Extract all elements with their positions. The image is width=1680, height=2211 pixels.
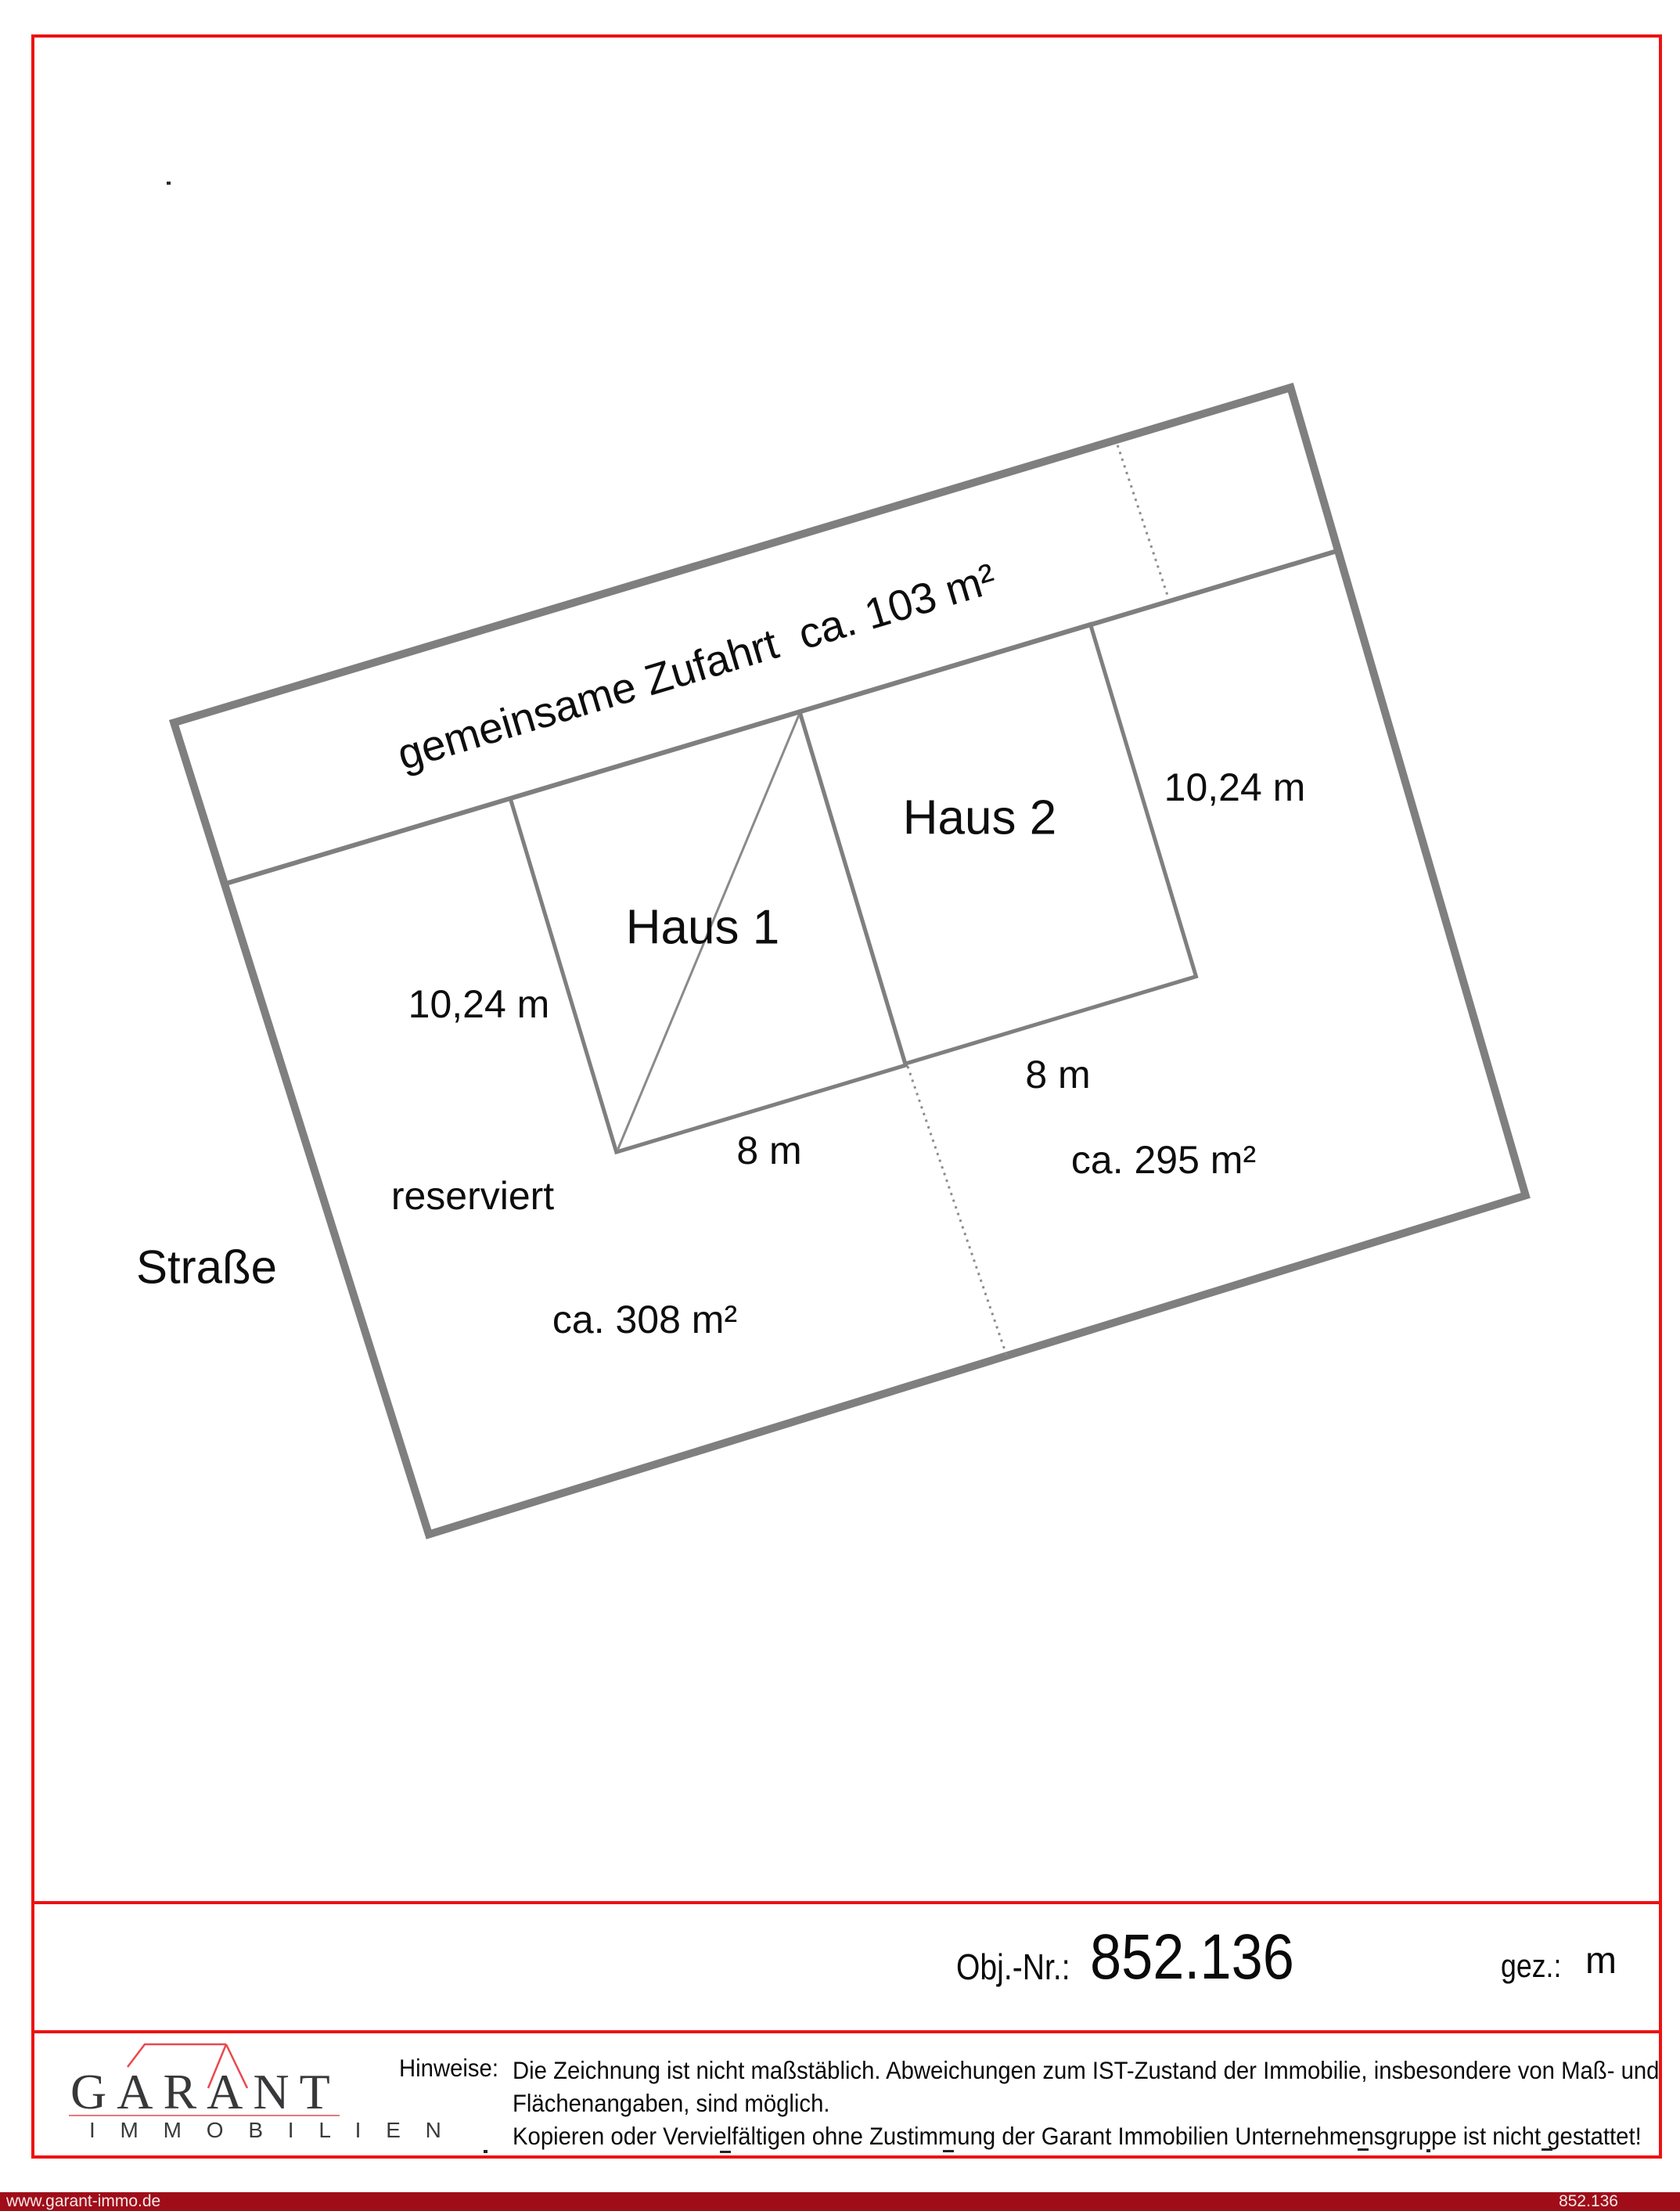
- logo-immobilien-text: I M M O B I L I E N: [89, 2118, 451, 2143]
- clipped-text-fragment: [1358, 2148, 1369, 2151]
- clipped-text-fragment: [484, 2150, 487, 2153]
- notes-label: Hinweise:: [399, 2054, 498, 2083]
- clipped-text-fragment: [720, 2151, 731, 2153]
- logo-roof-icon: [0, 0, 1680, 2211]
- notes-line-1: Die Zeichnung ist nicht maßstäblich. Abw…: [513, 2054, 1659, 2087]
- clipped-text-fragment: [943, 2150, 954, 2152]
- website-url: www.garant-immo.de: [6, 2192, 160, 2211]
- bottom-bar: www.garant-immo.de 852.136: [0, 2192, 1680, 2211]
- notes-line-2: Flächenangaben, sind möglich.: [513, 2087, 1659, 2119]
- clipped-text-fragment: [1541, 2148, 1552, 2151]
- bar-object-number: 852.136: [1559, 2192, 1618, 2211]
- clipped-text-fragment: [1426, 2149, 1430, 2152]
- notes-text: Die Zeichnung ist nicht maßstäblich. Abw…: [513, 2054, 1659, 2152]
- notes-line-3: Kopieren oder Vervielfältigen ohne Zusti…: [513, 2119, 1659, 2152]
- flyer-page: gemeinsame Zufahrt ca. 103 m² Haus 1 Hau…: [0, 0, 1680, 2211]
- logo-underline: [69, 2115, 340, 2116]
